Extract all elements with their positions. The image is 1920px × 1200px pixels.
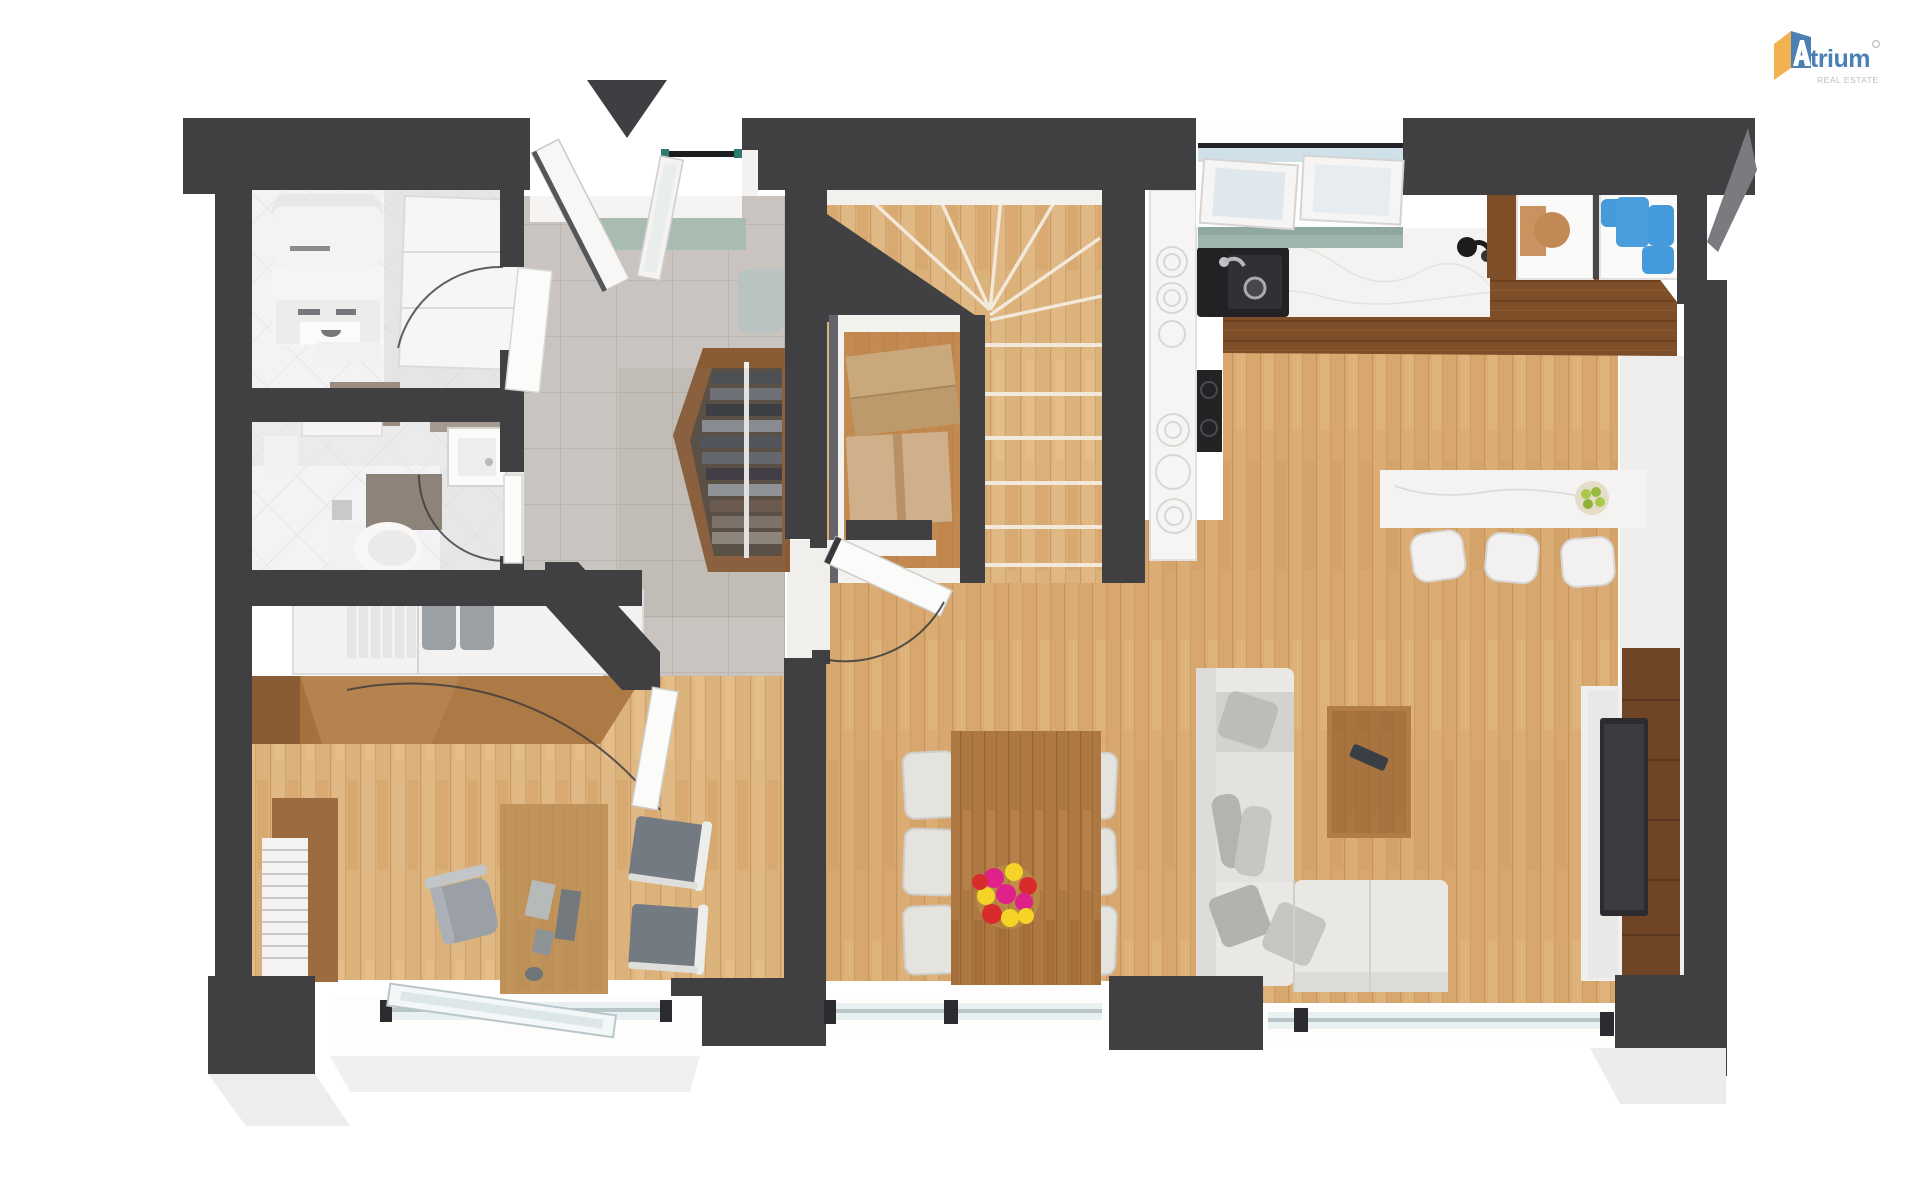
svg-text:trium: trium (1810, 45, 1870, 73)
svg-text:REAL ESTATE: REAL ESTATE (1817, 75, 1879, 85)
